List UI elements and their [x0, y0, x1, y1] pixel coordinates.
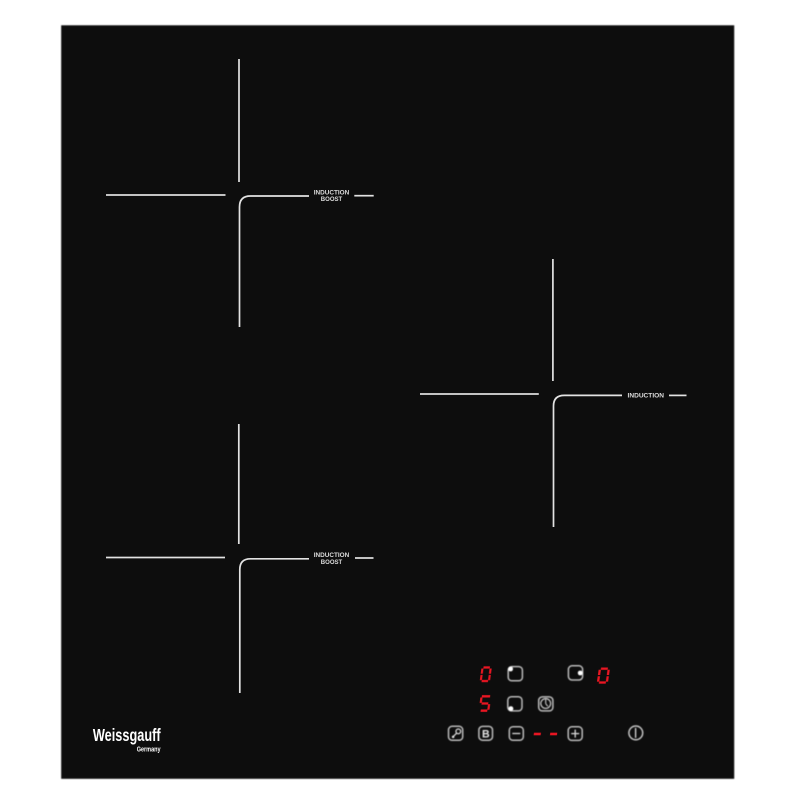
svg-text:BOOST: BOOST [321, 196, 343, 203]
svg-text:Germany: Germany [137, 746, 161, 753]
svg-text:BOOST: BOOST [321, 559, 343, 566]
svg-text:INDUCTION: INDUCTION [628, 392, 665, 399]
svg-text:B: B [482, 729, 490, 741]
svg-text:Weissgauff: Weissgauff [93, 725, 161, 745]
